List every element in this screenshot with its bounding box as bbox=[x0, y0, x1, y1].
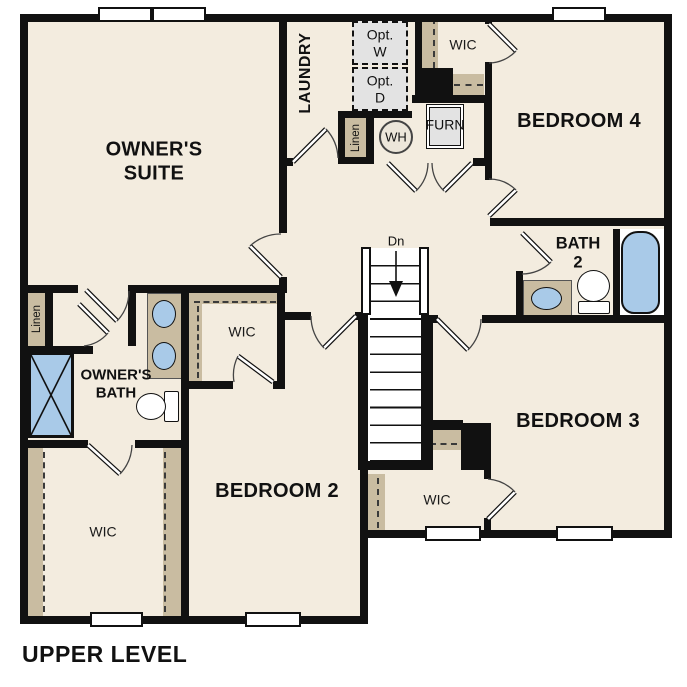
label-optional-dryer: Opt. D bbox=[362, 72, 398, 105]
room-label-wic-bedroom2: WIC bbox=[212, 324, 272, 341]
page-title: UPPER LEVEL bbox=[22, 641, 187, 668]
room-label-laundry: LAUNDRY bbox=[297, 32, 315, 113]
label-water-heater: WH bbox=[376, 129, 416, 144]
room-label-bedroom-3: BEDROOM 3 bbox=[478, 410, 678, 434]
room-label-linen-owners: Linen bbox=[31, 305, 43, 333]
room-label-wic-owners: WIC bbox=[73, 524, 133, 541]
room-label-bedroom-4: BEDROOM 4 bbox=[479, 110, 679, 134]
door bbox=[437, 319, 481, 350]
stairs-down-arrow-icon bbox=[389, 251, 403, 297]
door bbox=[388, 163, 428, 191]
door bbox=[432, 163, 472, 191]
door bbox=[522, 233, 551, 274]
floorplan-upper-level: OWNER'S SUITE LAUNDRY BEDROOM 4 BEDROOM … bbox=[0, 0, 687, 687]
door bbox=[489, 24, 516, 63]
door bbox=[250, 234, 281, 277]
room-label-bedroom-2: BEDROOM 2 bbox=[177, 480, 377, 504]
label-furnace: FURN bbox=[415, 117, 475, 134]
room-label-bath-2: BATH 2 bbox=[551, 235, 605, 274]
room-label-owners-bath: OWNER'S BATH bbox=[74, 366, 158, 401]
door bbox=[88, 445, 132, 474]
door bbox=[293, 129, 338, 162]
room-label-linen-laundry: Linen bbox=[350, 124, 362, 152]
shower-x-icon bbox=[31, 355, 71, 435]
room-label-wic-bedroom4: WIC bbox=[433, 37, 493, 54]
door bbox=[489, 179, 516, 216]
label-optional-washer: Opt. W bbox=[362, 26, 398, 59]
door bbox=[233, 356, 273, 382]
label-stairs-down: Dn bbox=[381, 233, 411, 248]
room-label-wic-bedroom3: WIC bbox=[407, 492, 467, 509]
door bbox=[311, 316, 356, 348]
room-label-owners-suite: OWNER'S SUITE bbox=[79, 138, 229, 185]
doors-and-symbols bbox=[0, 0, 687, 687]
door bbox=[488, 479, 515, 519]
